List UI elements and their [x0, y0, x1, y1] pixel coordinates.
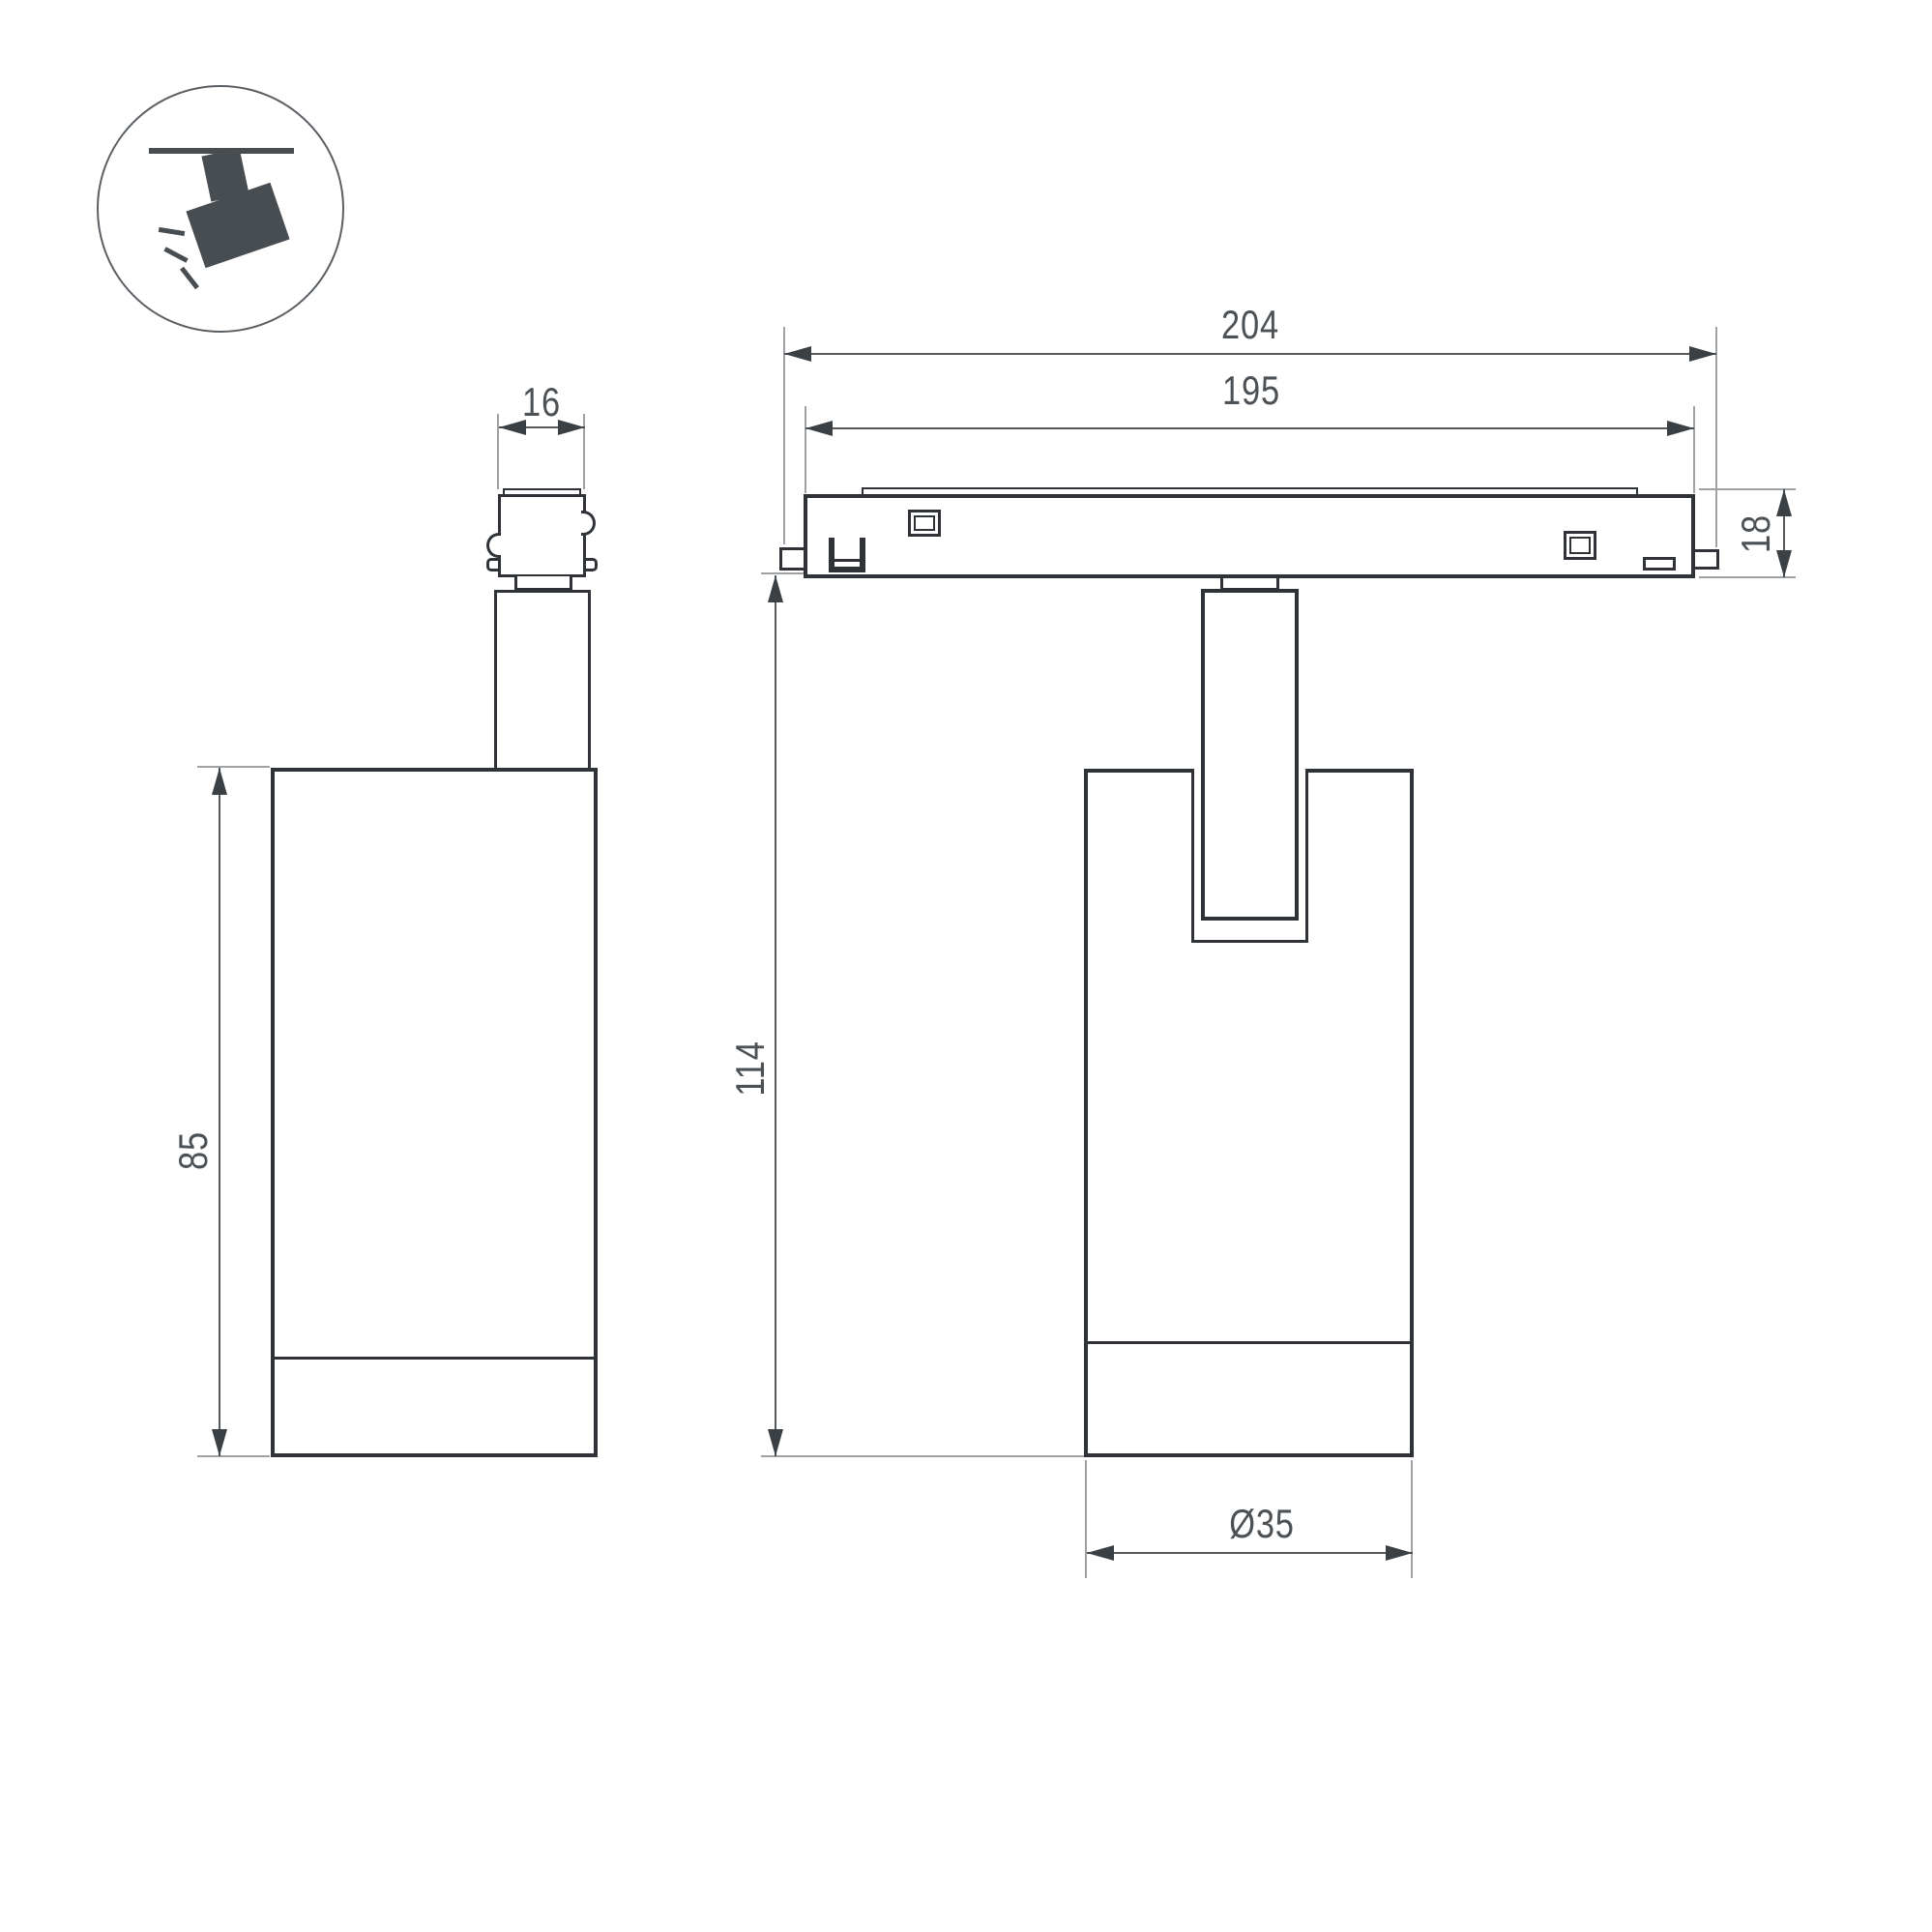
dim-arrow — [1386, 1545, 1413, 1561]
track-port-right — [1564, 531, 1596, 560]
adapter-clip-right — [581, 511, 596, 536]
track-port-left-inner — [914, 515, 935, 531]
extension-line — [197, 766, 270, 768]
dim-arrow — [558, 420, 585, 435]
extension-line — [805, 406, 806, 493]
dim-18-label: 18 — [1733, 514, 1779, 553]
dim-arrow — [212, 768, 227, 795]
dimension-line — [219, 768, 220, 1456]
dim-arrow — [1667, 421, 1694, 436]
technical-drawing: 16 85 204 195 — [0, 0, 1932, 1932]
swivel-stem — [494, 590, 591, 768]
track-clip-inner-line — [834, 559, 860, 562]
track-end-tab-right — [1692, 549, 1719, 570]
dim-arrow — [768, 575, 783, 602]
track-vent — [1643, 557, 1676, 571]
track-adapter — [498, 494, 586, 577]
body-top-edge-right — [1307, 769, 1414, 773]
adapter-tab-left — [486, 558, 501, 571]
dim-arrow — [1776, 489, 1792, 516]
dim-204-label: 204 — [1221, 302, 1279, 348]
track-end-tab-left — [779, 547, 806, 571]
dim-35-label: Ø35 — [1229, 1501, 1295, 1547]
dim-arrow — [212, 1429, 227, 1456]
dimension-line — [784, 353, 1716, 355]
dim-arrow — [768, 1429, 783, 1456]
track-port-left — [908, 510, 941, 537]
dim-16-label: 16 — [522, 379, 561, 425]
dim-arrow — [1776, 550, 1792, 577]
dimension-line — [805, 427, 1694, 429]
track-port-right-inner — [1569, 537, 1591, 554]
adapter-neck — [514, 576, 572, 591]
dim-arrow — [1689, 346, 1716, 362]
dim-195-label: 195 — [1222, 367, 1280, 414]
dim-arrow — [805, 421, 833, 436]
extension-line — [761, 1455, 1084, 1457]
dim-arrow — [1087, 1545, 1114, 1561]
lamp-body — [271, 768, 598, 1457]
adapter-tab-right — [583, 558, 598, 571]
adapter-clip-left — [486, 533, 501, 558]
extension-line — [761, 572, 804, 574]
dim-arrow — [784, 346, 811, 362]
extension-line — [1693, 406, 1695, 493]
lens-bezel-line — [274, 1357, 595, 1360]
swivel-stem-front — [1201, 589, 1299, 921]
body-top-edge-left — [1084, 769, 1192, 773]
dim-85-label: 85 — [170, 1131, 217, 1170]
dimension-line — [1087, 1552, 1413, 1554]
lens-bezel-line-front — [1087, 1341, 1411, 1344]
extension-line — [197, 1455, 270, 1457]
dimension-line — [775, 575, 776, 1456]
track-clip — [829, 538, 865, 572]
dim-114-label: 114 — [727, 1040, 774, 1096]
